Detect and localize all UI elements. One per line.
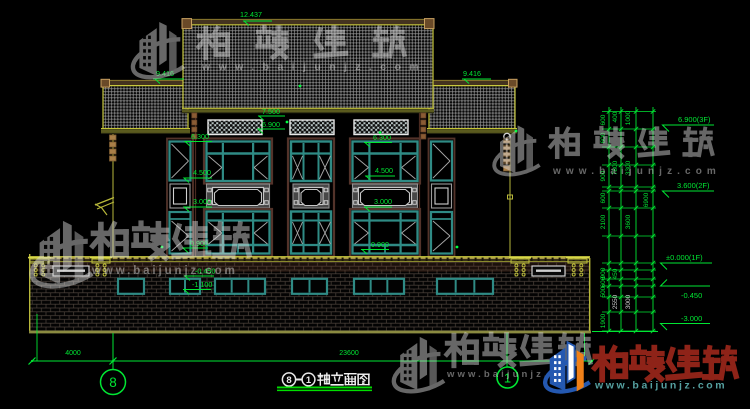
- svg-text:6900: 6900: [643, 192, 650, 207]
- svg-text:8: 8: [109, 375, 117, 390]
- svg-text:2100: 2100: [600, 214, 607, 229]
- svg-text:4000: 4000: [65, 350, 81, 357]
- svg-text:www.baijunjz.com: www.baijunjz.com: [201, 61, 427, 73]
- svg-text:www.baijunjz.com: www.baijunjz.com: [594, 380, 727, 392]
- svg-text:500: 500: [600, 286, 607, 297]
- svg-text:3000: 3000: [625, 294, 632, 309]
- svg-text:600: 600: [600, 192, 607, 203]
- svg-text:6.900: 6.900: [262, 120, 280, 129]
- svg-text:1900: 1900: [600, 313, 607, 328]
- svg-text:4.500: 4.500: [193, 168, 211, 177]
- svg-text:8: 8: [286, 375, 291, 386]
- svg-text:www.baijunjz.com: www.baijunjz.com: [91, 265, 238, 277]
- svg-text:±0.000(1F): ±0.000(1F): [666, 253, 703, 262]
- svg-text:-1.100: -1.100: [192, 280, 212, 289]
- svg-text:2550: 2550: [612, 294, 619, 309]
- svg-text:600: 600: [600, 114, 607, 125]
- svg-text:3.000: 3.000: [374, 197, 392, 206]
- svg-text:1: 1: [306, 375, 312, 386]
- svg-text:12.437: 12.437: [240, 10, 262, 19]
- svg-text:450: 450: [612, 268, 619, 279]
- svg-text:400: 400: [612, 111, 619, 122]
- svg-text:6.900(3F): 6.900(3F): [678, 115, 711, 124]
- svg-text:3.600(2F): 3.600(2F): [677, 181, 710, 190]
- svg-text:-0.450: -0.450: [681, 291, 702, 300]
- svg-text:600: 600: [600, 276, 607, 287]
- svg-text:0.900: 0.900: [371, 240, 389, 249]
- svg-text:3.000: 3.000: [193, 197, 211, 206]
- svg-text:1000: 1000: [625, 110, 632, 125]
- svg-text:-3.000: -3.000: [681, 314, 702, 323]
- svg-text:3600: 3600: [625, 214, 632, 229]
- svg-text:23600: 23600: [339, 350, 359, 357]
- svg-text:9.416: 9.416: [463, 69, 481, 78]
- svg-text:6.300: 6.300: [191, 132, 209, 141]
- svg-text:www.baijunjz.com: www.baijunjz.com: [552, 166, 721, 177]
- svg-text:6.300: 6.300: [373, 133, 391, 142]
- svg-text:7.500: 7.500: [262, 107, 280, 116]
- svg-text:4.500: 4.500: [375, 166, 393, 175]
